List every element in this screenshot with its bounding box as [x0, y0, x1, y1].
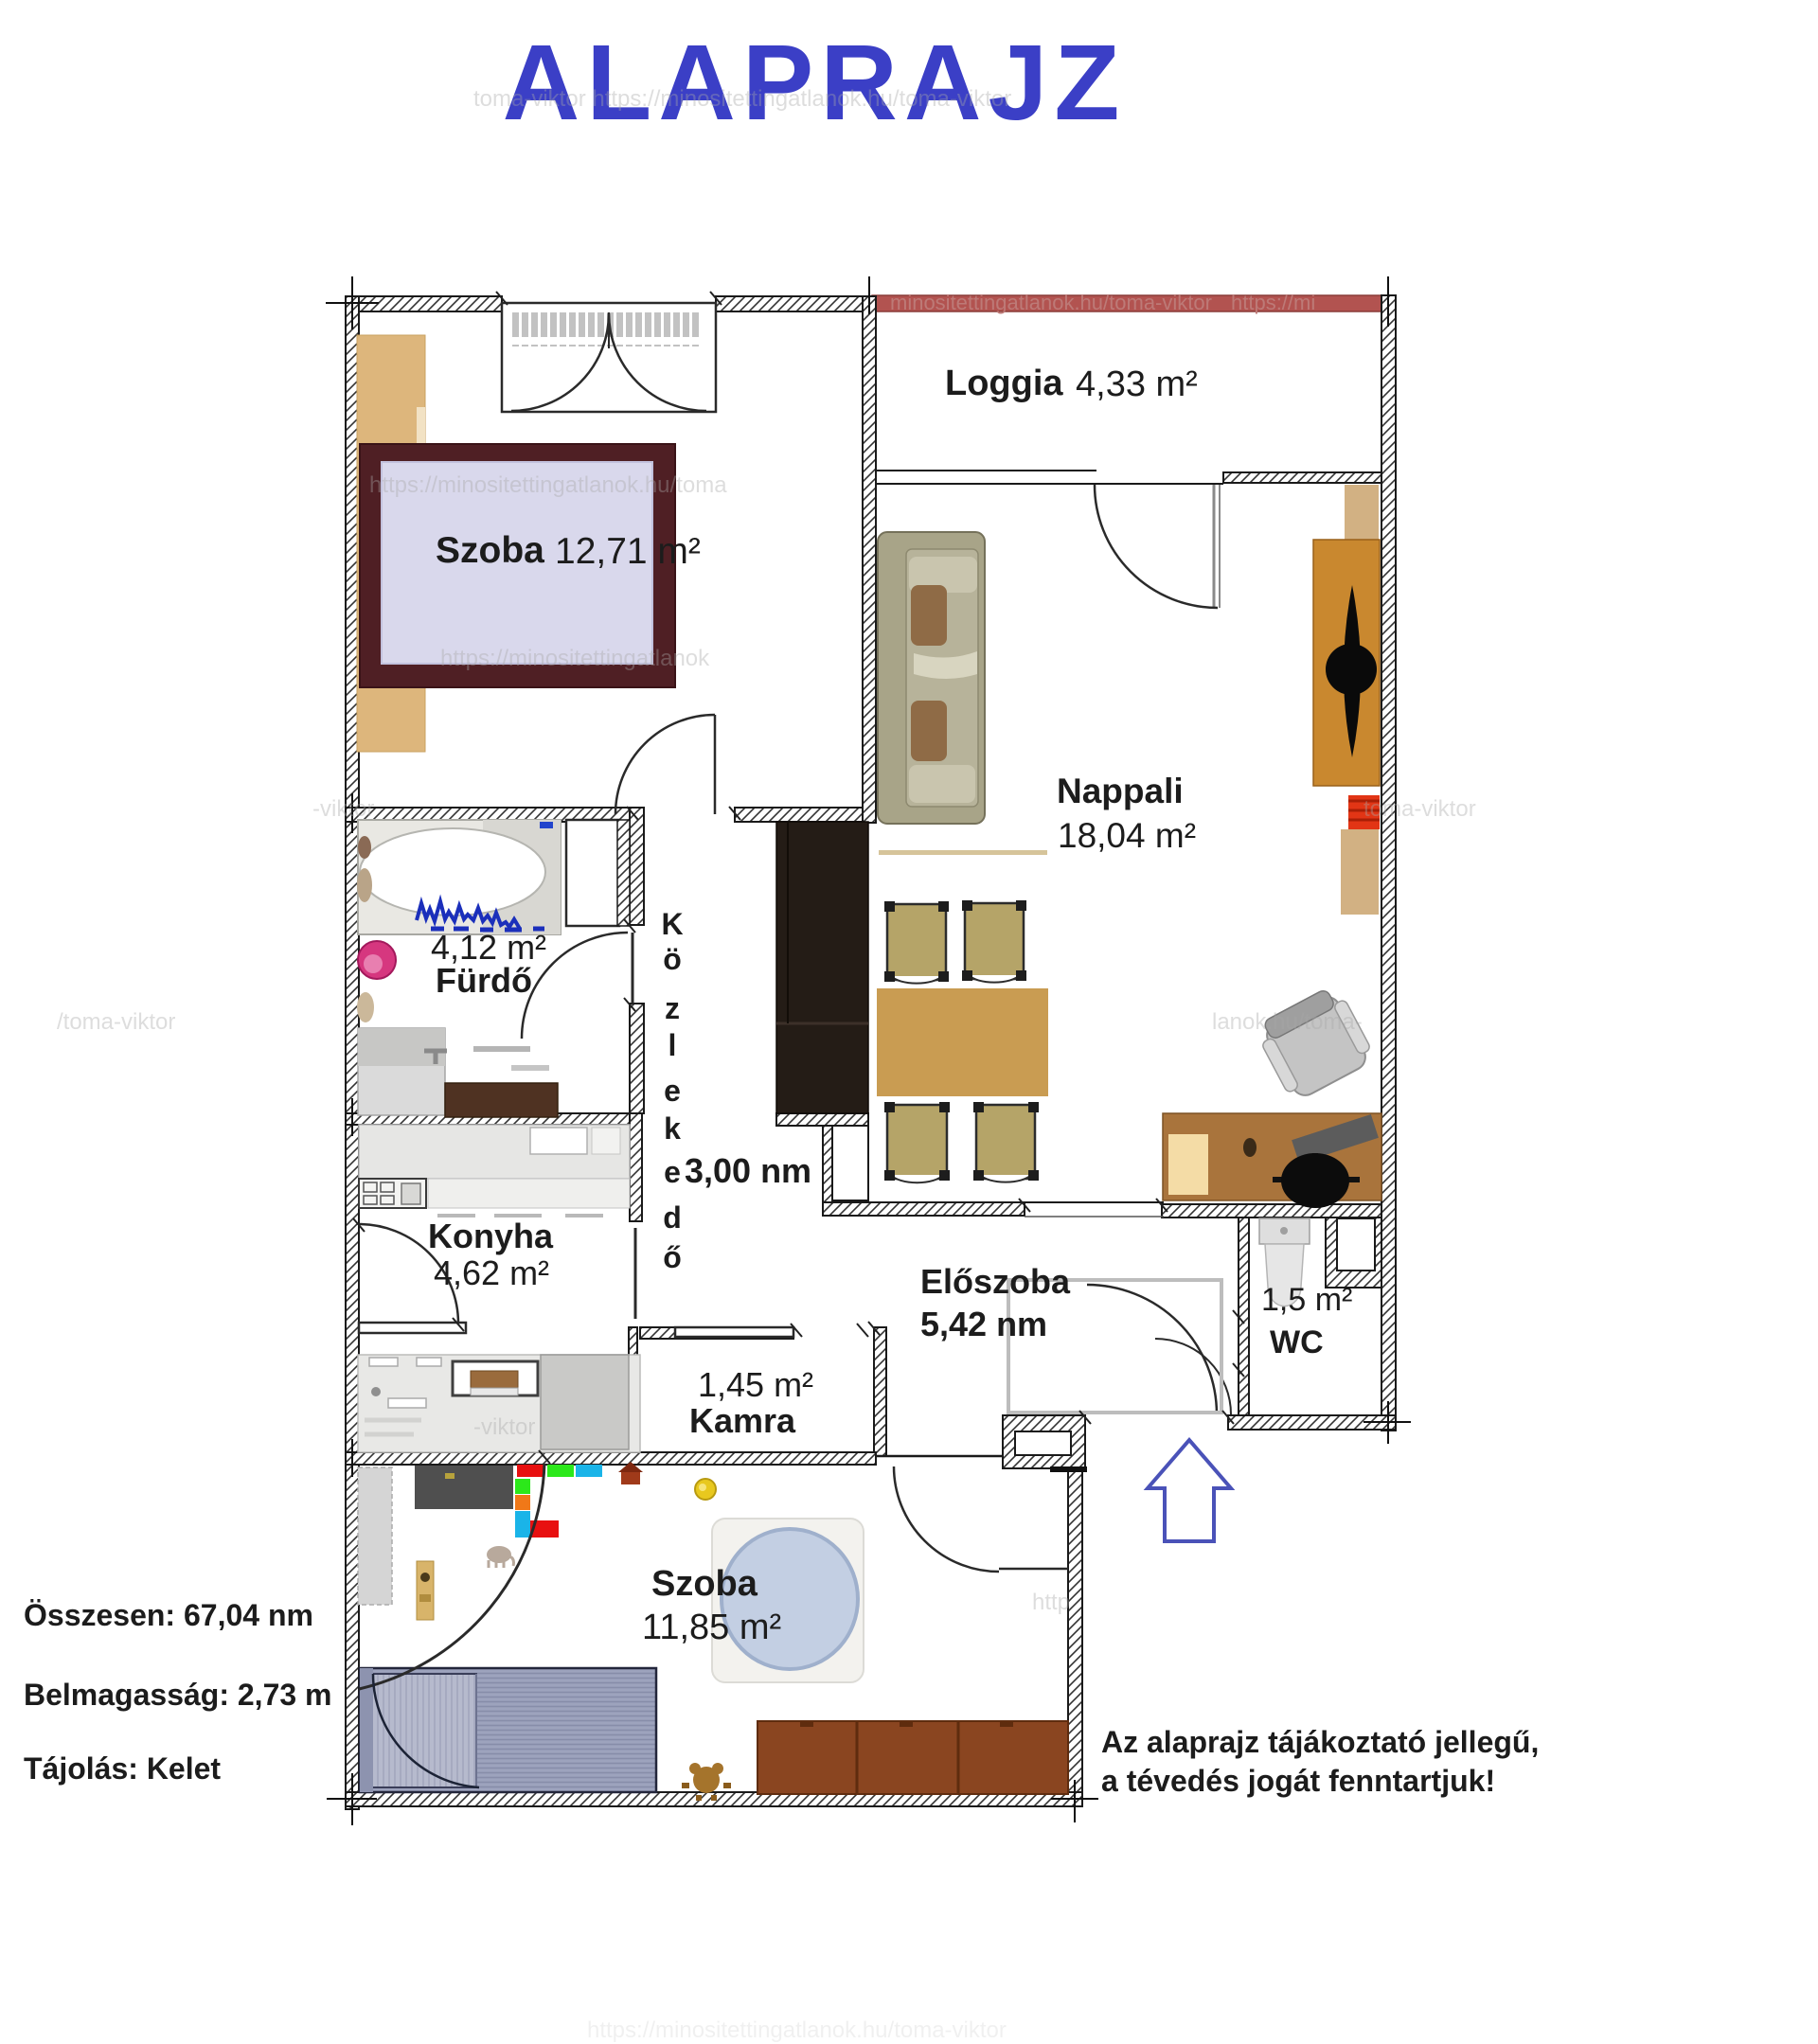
svg-text:toma-viktor: toma-viktor	[1363, 796, 1476, 822]
svg-text:Kamra: Kamra	[689, 1401, 796, 1440]
svg-text:11,85 m²: 11,85 m²	[642, 1608, 781, 1647]
svg-text:4,33 m²: 4,33 m²	[1076, 364, 1198, 404]
svg-text:z: z	[665, 991, 680, 1025]
svg-text:https://minositettingatlanok.h: https://minositettingatlanok.hu/toma	[369, 472, 727, 498]
svg-text:ALAPRAJZ: ALAPRAJZ	[503, 23, 1127, 142]
svg-text:toma-viktor https://minositett: toma-viktor https://minositettingatlanok…	[473, 86, 1011, 112]
svg-text:12,71 m²: 12,71 m²	[555, 531, 701, 572]
svg-text:-viktor: -viktor	[312, 796, 374, 822]
svg-text:Szoba: Szoba	[651, 1564, 758, 1604]
svg-text:Belmagasság: 2,73 m: Belmagasság: 2,73 m	[24, 1678, 332, 1712]
svg-text:e: e	[664, 1074, 681, 1108]
svg-text:3,00 nm: 3,00 nm	[685, 1151, 811, 1190]
svg-text:minositettingatlanok.hu/toma-v: minositettingatlanok.hu/toma-viktor	[890, 291, 1212, 314]
svg-text:4,62 m²: 4,62 m²	[434, 1253, 549, 1292]
svg-text:Loggia: Loggia	[945, 364, 1063, 403]
svg-text:Fürdő: Fürdő	[436, 961, 532, 1000]
svg-text:a tévedés jogát fenntartjuk!: a tévedés jogát fenntartjuk!	[1101, 1764, 1495, 1798]
svg-text:Az alaprajz tájákoztató jelleg: Az alaprajz tájákoztató jellegű,	[1101, 1725, 1539, 1759]
svg-text:ő: ő	[663, 1240, 682, 1274]
svg-text:https://minositettingatlanok.h: https://minositettingatlanok.hu/toma-vik…	[587, 2017, 1007, 2043]
svg-text:d: d	[663, 1200, 682, 1235]
svg-text:1,45 m²: 1,45 m²	[698, 1365, 813, 1404]
svg-text:Szoba: Szoba	[436, 530, 544, 571]
svg-text:lanok.hu/toma-: lanok.hu/toma-	[1212, 1009, 1363, 1035]
svg-text:ö: ö	[663, 942, 682, 976]
svg-text:Konyha: Konyha	[428, 1217, 554, 1255]
svg-text:https://mi: https://mi	[1231, 291, 1315, 314]
svg-text:WC: WC	[1270, 1324, 1324, 1360]
svg-text:1,5 m²: 1,5 m²	[1261, 1282, 1352, 1318]
svg-text:Előszoba: Előszoba	[920, 1262, 1071, 1301]
svg-text:Tájolás: Kelet: Tájolás: Kelet	[24, 1751, 221, 1786]
svg-text:https://minositettingatlanok: https://minositettingatlanok	[440, 646, 710, 671]
svg-text:-viktor: -viktor	[473, 1414, 535, 1440]
svg-text:5,42 nm: 5,42 nm	[920, 1305, 1047, 1343]
svg-text:18,04 m²: 18,04 m²	[1058, 816, 1196, 855]
svg-text:K: K	[661, 907, 683, 941]
svg-text:Nappali: Nappali	[1057, 772, 1184, 810]
svg-text:k: k	[664, 1111, 681, 1146]
svg-text:/toma-viktor: /toma-viktor	[57, 1009, 175, 1035]
svg-text:Összesen: 67,04 nm: Összesen: 67,04 nm	[24, 1598, 313, 1632]
svg-text:e: e	[664, 1155, 681, 1189]
svg-text:http: http	[1032, 1590, 1070, 1615]
svg-text:l: l	[668, 1028, 677, 1062]
